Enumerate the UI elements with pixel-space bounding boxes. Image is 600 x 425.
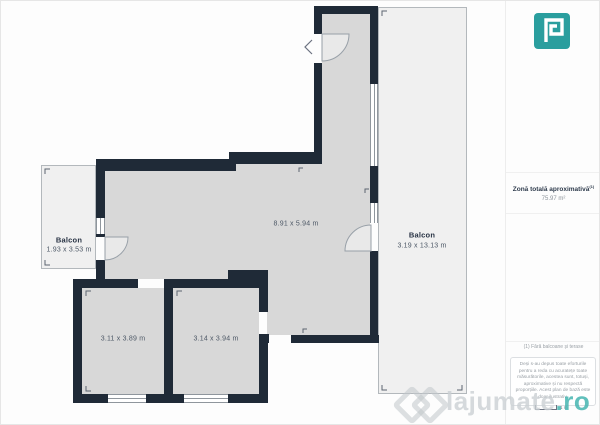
total-area-value: 75.97 m² <box>506 196 600 202</box>
total-area-label: Zonă totală aproximativă(1) <box>506 184 600 193</box>
wall-segment <box>228 270 268 279</box>
room-2-dimensions: 3.14 x 3.94 m <box>193 336 238 343</box>
total-area-superscript: (1) <box>589 184 594 189</box>
wall-segment <box>314 6 322 34</box>
window <box>108 394 146 403</box>
panel-divider <box>506 172 600 173</box>
wall-segment <box>259 288 268 312</box>
wall-segment <box>96 234 105 237</box>
wall-segment <box>73 279 138 288</box>
window <box>184 394 228 403</box>
floor-plan: 8.91 x 5.94 m 3.11 x 3.89 m 3.14 x 3.94 … <box>1 1 506 425</box>
wall-segment <box>146 394 184 403</box>
room-living-dimensions: 8.91 x 5.94 m <box>273 221 318 228</box>
room-1-dimensions: 3.11 x 3.89 m <box>101 336 146 343</box>
watermark-text: lajumate.ro <box>446 383 590 419</box>
balcony-left-label: Balcon <box>56 236 82 245</box>
wall-segment <box>164 279 268 288</box>
wall-segment <box>73 394 108 403</box>
area-footnote: (1) Fără balcoane și terase <box>506 344 600 350</box>
entrance-arrow-icon <box>305 40 312 54</box>
wall-segment <box>370 166 378 203</box>
total-area-label-text: Zonă totală aproximativă <box>513 186 590 193</box>
wall-segment <box>96 159 236 171</box>
room-living-floor-extension <box>267 279 370 335</box>
wall-segment <box>291 335 379 343</box>
balcony-left-dimensions: 1.93 x 3.53 m <box>46 247 91 254</box>
floorplan-page: 8.91 x 5.94 m 3.11 x 3.89 m 3.14 x 3.94 … <box>0 0 600 425</box>
watermark-main: lajumate <box>446 386 556 416</box>
wall-segment <box>96 171 105 218</box>
watermark-suffix: .ro <box>556 386 591 416</box>
wall-segment <box>314 6 378 14</box>
balcony-right-label: Balcon <box>409 231 435 240</box>
window <box>96 218 105 234</box>
planner-logo-icon <box>534 13 570 49</box>
wall-segment <box>259 337 268 394</box>
wall-segment <box>229 152 322 164</box>
wall-segment <box>164 288 173 394</box>
window <box>370 84 378 166</box>
panel-divider <box>506 341 600 342</box>
wall-segment <box>73 288 82 403</box>
room-living-floor <box>105 164 370 279</box>
balcony-right-floor <box>378 7 467 394</box>
watermark: lajumate.ro <box>393 385 598 423</box>
panel-divider <box>506 213 600 214</box>
wall-segment <box>370 6 378 84</box>
wall-segment <box>370 251 378 343</box>
corridor-floor <box>322 14 370 164</box>
balcony-right-dimensions: 3.19 x 13.13 m <box>397 243 446 250</box>
wall-segment <box>228 394 268 403</box>
wall-segment <box>314 63 322 164</box>
window <box>370 203 378 223</box>
